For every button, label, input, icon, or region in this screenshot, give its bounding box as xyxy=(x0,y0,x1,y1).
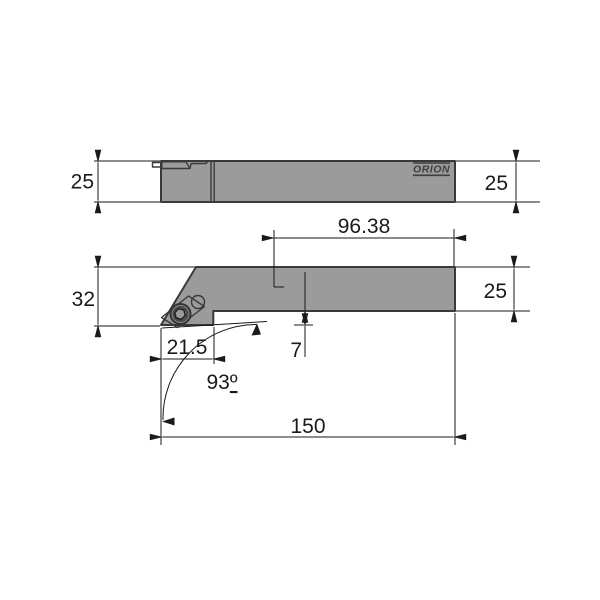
dim-label-total-height: 32 xyxy=(72,288,95,311)
dim-label-tip-to-end: 96.38 xyxy=(338,215,391,238)
front-view-dimensions: 32 96.38 25 21.5 7 93º 150 xyxy=(72,215,530,445)
angle-arc-arrow xyxy=(162,418,175,426)
dim-label-shank-height: 25 xyxy=(484,280,507,303)
dim-label-top-height-left: 25 xyxy=(71,171,94,194)
dim-label-tip-drop: 7 xyxy=(290,339,302,362)
clamp-screw xyxy=(171,304,191,324)
dim-label-overall-length: 150 xyxy=(290,415,325,438)
brand-logo: ORION xyxy=(413,163,450,176)
top-view: ORION xyxy=(153,161,456,202)
tool-holder-technical-drawing: ORION 25 25 32 96.3 xyxy=(0,0,600,600)
dim-label-lead-angle: 93º xyxy=(206,371,237,394)
tool-body-front xyxy=(161,267,455,325)
dim-label-top-height-right: 25 xyxy=(485,172,508,195)
angle-arc-arrow xyxy=(252,324,262,336)
lead-angle-value: 93 xyxy=(206,371,229,394)
brand-logo-text: ORION xyxy=(413,164,450,176)
tool-body-top xyxy=(161,161,455,202)
degree-ordinal-symbol: º xyxy=(230,371,238,394)
screw-hex-socket xyxy=(175,309,186,320)
drawing-sheet: ORION 25 25 32 96.3 xyxy=(0,0,600,600)
front-view xyxy=(161,267,455,328)
